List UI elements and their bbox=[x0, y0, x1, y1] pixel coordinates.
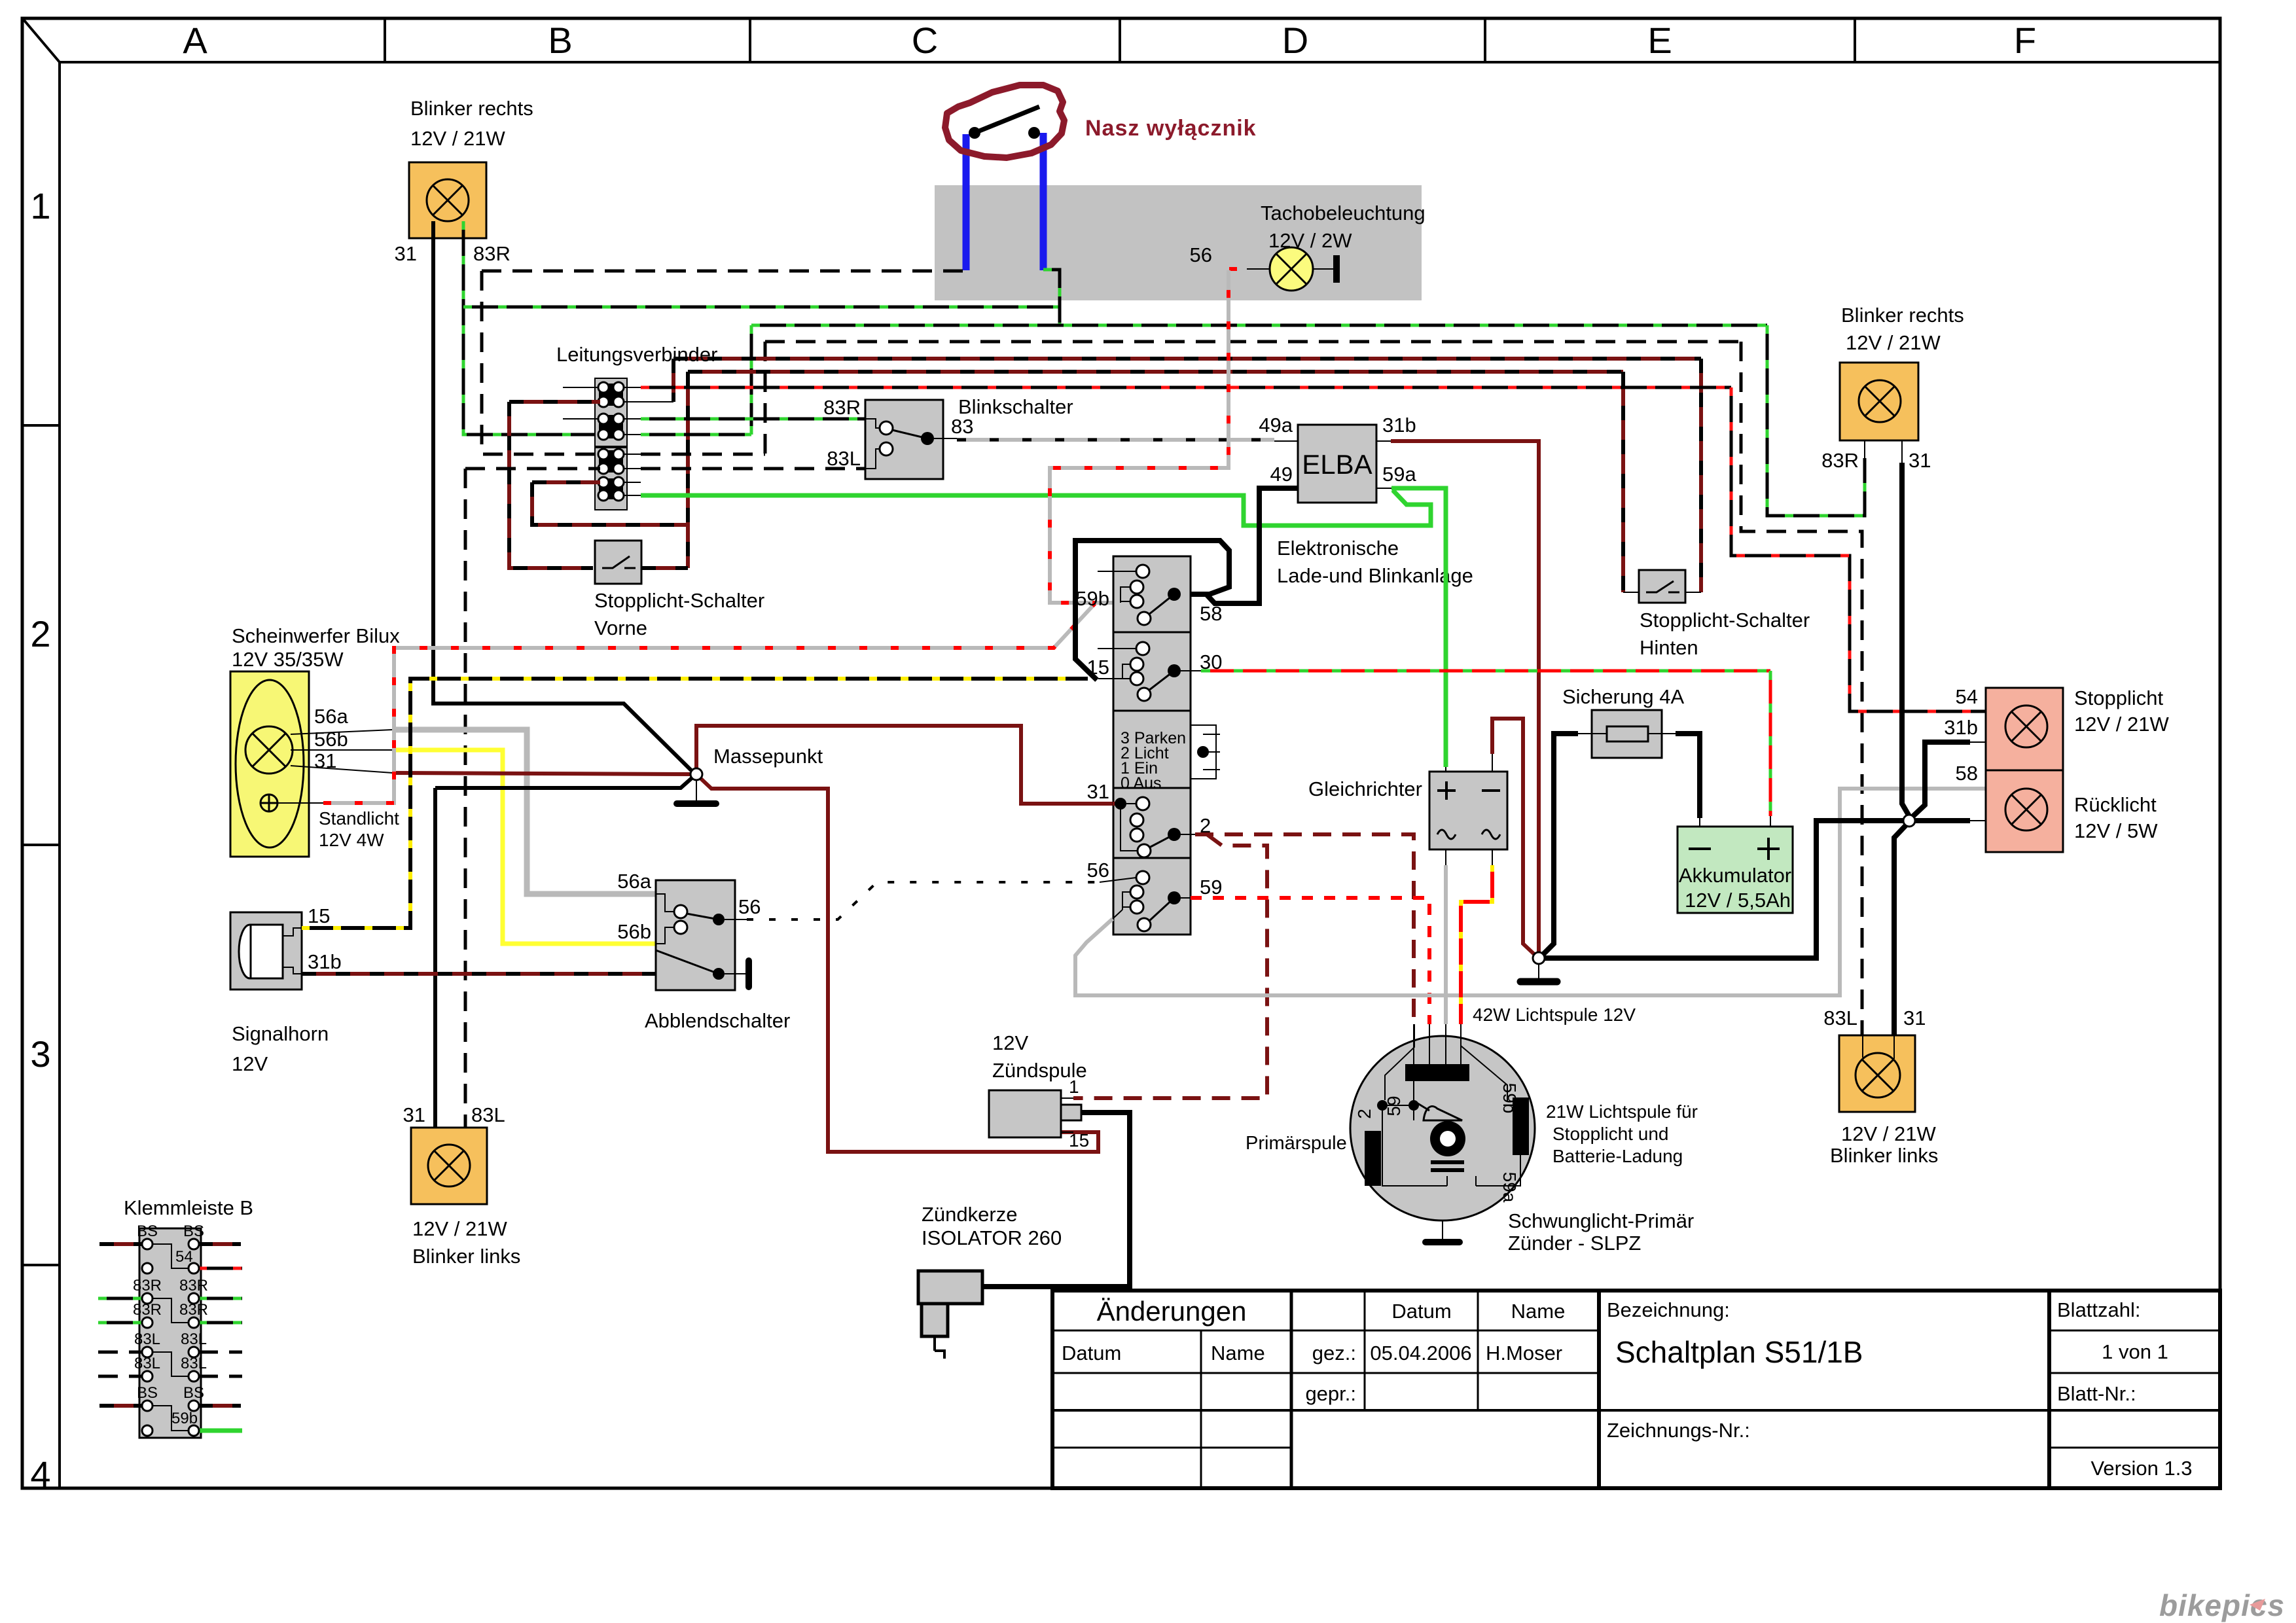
svg-text:1: 1 bbox=[30, 185, 50, 226]
svg-text:59b: 59b bbox=[171, 1410, 198, 1427]
svg-text:Nasz wyłącznik: Nasz wyłącznik bbox=[1085, 116, 1257, 141]
svg-text:05.04.2006: 05.04.2006 bbox=[1370, 1342, 1471, 1364]
svg-text:58: 58 bbox=[1956, 762, 1978, 785]
svg-text:49a: 49a bbox=[1259, 414, 1293, 437]
svg-text:56: 56 bbox=[738, 895, 761, 918]
svg-text:Signalhorn: Signalhorn bbox=[232, 1022, 329, 1045]
svg-text:Massepunkt: Massepunkt bbox=[713, 745, 823, 768]
svg-text:12V: 12V bbox=[232, 1052, 268, 1075]
svg-text:BS: BS bbox=[183, 1222, 204, 1240]
svg-text:ELBA: ELBA bbox=[1302, 449, 1372, 480]
svg-text:83L: 83L bbox=[827, 447, 861, 470]
svg-text:Hinten: Hinten bbox=[1640, 636, 1698, 659]
svg-text:56: 56 bbox=[1087, 859, 1109, 882]
svg-text:0 Aus: 0 Aus bbox=[1121, 774, 1162, 793]
svg-text:31: 31 bbox=[1903, 1007, 1926, 1029]
svg-text:Blinkschalter: Blinkschalter bbox=[958, 395, 1073, 418]
svg-text:12V 4W: 12V 4W bbox=[319, 830, 384, 850]
svg-text:Vorne: Vorne bbox=[594, 616, 647, 639]
svg-text:Klemmleiste B: Klemmleiste B bbox=[124, 1196, 253, 1219]
svg-text:Elektronische: Elektronische bbox=[1277, 537, 1399, 560]
svg-text:Zünder - SLPZ: Zünder - SLPZ bbox=[1508, 1232, 1641, 1255]
svg-text:H.Moser: H.Moser bbox=[1486, 1342, 1562, 1364]
svg-text:BS: BS bbox=[137, 1384, 158, 1402]
svg-text:83R: 83R bbox=[1821, 449, 1859, 472]
svg-text:E: E bbox=[1647, 20, 1672, 61]
svg-text:F: F bbox=[2014, 20, 2036, 61]
svg-text:83L: 83L bbox=[1823, 1007, 1857, 1029]
svg-text:83L: 83L bbox=[181, 1355, 207, 1372]
svg-text:Rücklicht: Rücklicht bbox=[2074, 793, 2157, 816]
svg-text:Version 1.3: Version 1.3 bbox=[2090, 1457, 2192, 1480]
svg-text:31: 31 bbox=[1909, 449, 1931, 472]
svg-text:12V / 21W: 12V / 21W bbox=[1846, 331, 1941, 354]
svg-text:2: 2 bbox=[30, 613, 50, 654]
svg-text:Datum: Datum bbox=[1062, 1342, 1121, 1364]
svg-text:83L: 83L bbox=[134, 1330, 160, 1348]
svg-text:83R: 83R bbox=[823, 396, 861, 419]
svg-text:gepr.:: gepr.: bbox=[1305, 1382, 1356, 1405]
svg-text:83R: 83R bbox=[133, 1277, 162, 1294]
svg-text:12V / 21W: 12V / 21W bbox=[410, 127, 505, 150]
svg-text:Akkumulator: Akkumulator bbox=[1679, 864, 1791, 887]
svg-text:Änderungen: Änderungen bbox=[1097, 1296, 1247, 1327]
svg-text:15: 15 bbox=[1087, 656, 1109, 679]
svg-text:Abblendschalter: Abblendschalter bbox=[645, 1009, 790, 1032]
svg-text:83: 83 bbox=[951, 415, 973, 438]
svg-text:31: 31 bbox=[395, 242, 417, 265]
svg-text:Stopplicht: Stopplicht bbox=[2074, 687, 2164, 709]
svg-text:83R: 83R bbox=[133, 1301, 162, 1319]
svg-text:Blattzahl:: Blattzahl: bbox=[2057, 1298, 2141, 1321]
svg-text:31b: 31b bbox=[1382, 414, 1416, 437]
svg-text:83L: 83L bbox=[471, 1103, 505, 1126]
svg-text:B: B bbox=[548, 20, 572, 61]
svg-text:Schwunglicht-Primär: Schwunglicht-Primär bbox=[1508, 1209, 1694, 1232]
svg-text:49: 49 bbox=[1270, 463, 1293, 486]
svg-text:12V / 21W: 12V / 21W bbox=[1841, 1122, 1936, 1145]
svg-text:15: 15 bbox=[1069, 1130, 1089, 1150]
svg-text:Schaltplan S51/1B: Schaltplan S51/1B bbox=[1615, 1335, 1863, 1369]
svg-text:2: 2 bbox=[1354, 1109, 1374, 1119]
svg-text:12V / 5,5Ah: 12V / 5,5Ah bbox=[1685, 889, 1791, 912]
svg-text:1 von 1: 1 von 1 bbox=[2102, 1340, 2168, 1363]
svg-text:31b: 31b bbox=[1944, 716, 1978, 739]
svg-text:ISOLATOR 260: ISOLATOR 260 bbox=[922, 1226, 1062, 1249]
svg-text:BS: BS bbox=[183, 1384, 204, 1402]
svg-text:BS: BS bbox=[137, 1222, 158, 1240]
svg-text:59: 59 bbox=[1200, 876, 1222, 899]
svg-text:15: 15 bbox=[308, 904, 330, 927]
svg-text:54: 54 bbox=[1956, 685, 1978, 708]
svg-text:56b: 56b bbox=[314, 728, 348, 751]
svg-text:Batterie-Ladung: Batterie-Ladung bbox=[1552, 1146, 1683, 1166]
svg-text:Scheinwerfer Bilux: Scheinwerfer Bilux bbox=[232, 624, 400, 647]
svg-text:31: 31 bbox=[1087, 780, 1109, 803]
svg-text:Datum: Datum bbox=[1391, 1300, 1451, 1323]
svg-text:Name: Name bbox=[1511, 1300, 1566, 1323]
svg-text:54: 54 bbox=[175, 1248, 193, 1266]
svg-text:83R: 83R bbox=[179, 1277, 208, 1294]
svg-text:3: 3 bbox=[30, 1033, 50, 1075]
svg-text:58: 58 bbox=[1200, 602, 1222, 625]
svg-text:Blatt-Nr.:: Blatt-Nr.: bbox=[2057, 1382, 2136, 1405]
svg-text:12V 35/35W: 12V 35/35W bbox=[232, 648, 344, 671]
svg-text:12V: 12V bbox=[992, 1031, 1028, 1054]
svg-text:A: A bbox=[183, 20, 207, 61]
svg-text:Stopplicht-Schalter: Stopplicht-Schalter bbox=[1640, 609, 1810, 632]
svg-text:Bezeichnung:: Bezeichnung: bbox=[1607, 1298, 1730, 1321]
svg-text:4: 4 bbox=[30, 1454, 50, 1495]
svg-text:Sicherung 4A: Sicherung 4A bbox=[1562, 685, 1684, 708]
svg-text:12V / 21W: 12V / 21W bbox=[412, 1217, 507, 1240]
svg-text:56a: 56a bbox=[314, 705, 348, 728]
svg-text:12V / 5W: 12V / 5W bbox=[2074, 819, 2158, 842]
svg-text:59a: 59a bbox=[1382, 463, 1416, 486]
svg-text:Standlicht: Standlicht bbox=[319, 808, 399, 829]
svg-text:Tachobeleuchtung: Tachobeleuchtung bbox=[1261, 202, 1426, 224]
svg-text:59b: 59b bbox=[1499, 1083, 1520, 1114]
svg-text:59b: 59b bbox=[1075, 587, 1109, 610]
svg-text:bikepics: bikepics bbox=[2159, 1588, 2285, 1622]
svg-text:1: 1 bbox=[1069, 1077, 1079, 1097]
svg-text:31b: 31b bbox=[308, 950, 342, 973]
svg-text:Stopplicht und: Stopplicht und bbox=[1552, 1124, 1668, 1144]
svg-text:59: 59 bbox=[1384, 1096, 1404, 1116]
svg-text:Blinker links: Blinker links bbox=[1830, 1144, 1938, 1167]
svg-text:Gleichrichter: Gleichrichter bbox=[1308, 777, 1422, 800]
svg-text:Blinker rechts: Blinker rechts bbox=[1841, 304, 1964, 327]
svg-text:Leitungsverbinder: Leitungsverbinder bbox=[556, 343, 717, 366]
svg-text:D: D bbox=[1282, 20, 1308, 61]
svg-text:C: C bbox=[912, 20, 938, 61]
svg-text:83R: 83R bbox=[473, 242, 511, 265]
svg-text:31: 31 bbox=[314, 749, 336, 772]
svg-text:12V / 2W: 12V / 2W bbox=[1268, 229, 1352, 252]
svg-text:12V / 21W: 12V / 21W bbox=[2074, 713, 2169, 736]
svg-text:Zündkerze: Zündkerze bbox=[922, 1203, 1017, 1226]
svg-text:56a: 56a bbox=[617, 870, 651, 893]
svg-text:Primärspule: Primärspule bbox=[1246, 1133, 1347, 1154]
svg-text:31: 31 bbox=[403, 1103, 425, 1126]
svg-text:83L: 83L bbox=[134, 1355, 160, 1372]
svg-text:56b: 56b bbox=[617, 920, 651, 943]
svg-text:42W Lichtspule 12V: 42W Lichtspule 12V bbox=[1473, 1005, 1636, 1025]
svg-text:56: 56 bbox=[1190, 243, 1212, 266]
svg-text:59a: 59a bbox=[1499, 1172, 1520, 1203]
svg-text:83L: 83L bbox=[181, 1330, 207, 1348]
svg-text:Blinker rechts: Blinker rechts bbox=[410, 97, 533, 120]
svg-text:gez.:: gez.: bbox=[1312, 1342, 1356, 1364]
svg-text:21W Lichtspule für: 21W Lichtspule für bbox=[1546, 1101, 1698, 1122]
svg-text:Stopplicht-Schalter: Stopplicht-Schalter bbox=[594, 589, 764, 612]
svg-text:83R: 83R bbox=[179, 1301, 208, 1319]
svg-text:Name: Name bbox=[1211, 1342, 1265, 1364]
svg-text:Blinker links: Blinker links bbox=[412, 1245, 520, 1268]
svg-text:Zeichnungs-Nr.:: Zeichnungs-Nr.: bbox=[1607, 1419, 1750, 1442]
